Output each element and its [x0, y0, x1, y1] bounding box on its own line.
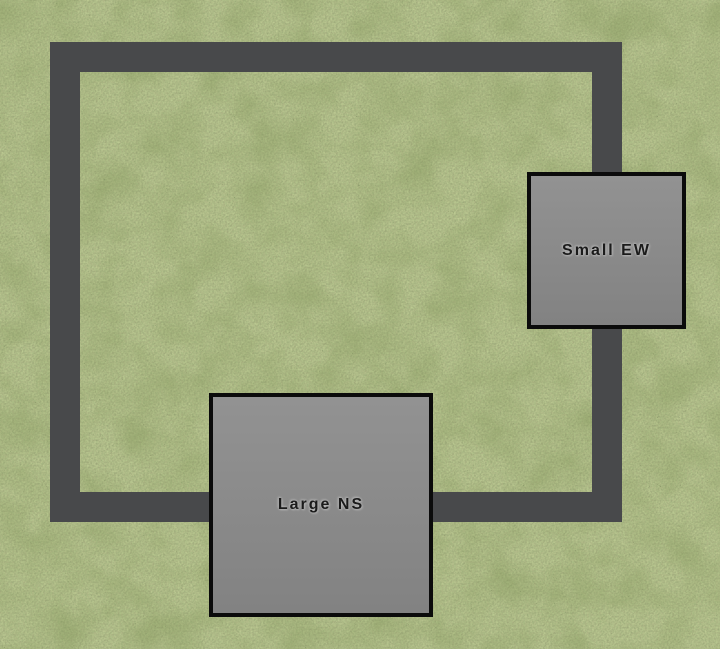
building-large-ns[interactable]: Large NS	[209, 393, 433, 617]
building-small-ew[interactable]: Small EW	[527, 172, 686, 329]
simulation-viewport[interactable]: Small EW Large NS	[0, 0, 720, 649]
building-label-small-ew: Small EW	[562, 242, 651, 260]
building-label-large-ns: Large NS	[278, 496, 364, 514]
